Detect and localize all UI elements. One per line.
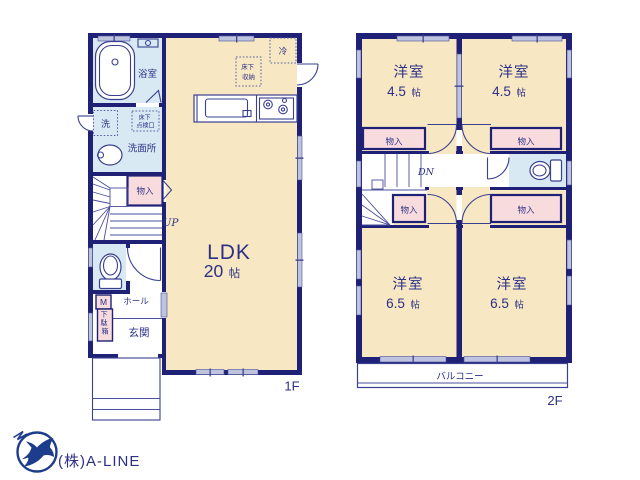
label-balcony: バルコニー <box>436 372 483 383</box>
label-closet-2f-tr: 物入 <box>517 137 535 147</box>
label-floor-2f: 2F <box>547 393 562 408</box>
label-stairs-down: DN <box>417 167 435 178</box>
label-closet-2f-tl: 物入 <box>385 137 403 147</box>
floorplan-page: 浴室 洗 床下 点検口 洗面所 物入 UP LDK 20 帖 床下 収納 冷 M… <box>0 0 640 480</box>
label-west-room-tl: 洋室 <box>394 64 425 81</box>
label-west-room-bl: 洋室 <box>393 276 424 293</box>
floor-2f-plan: 洋室 4.5 帖 洋室 4.5 帖 洋室 6.5 帖 洋室 6.5 帖 物入 物… <box>356 33 572 408</box>
porch <box>93 358 161 420</box>
company-name: (株)A-LINE <box>58 453 140 470</box>
toilet-door-icon-1f <box>128 248 161 281</box>
label-west-room-tr: 洋室 <box>499 64 530 81</box>
label-meter: M <box>100 297 107 307</box>
washbasin-icon <box>98 145 123 165</box>
company-logo <box>14 432 57 472</box>
toilet-icon-2f <box>530 160 562 181</box>
label-refrigerator: 冷 <box>279 46 288 56</box>
toilet-icon-1f <box>100 254 122 289</box>
hallway-2f <box>427 154 509 187</box>
label-washer: 洗 <box>101 118 110 129</box>
label-shoe-cabinet: 下 駄 箱 <box>101 311 110 336</box>
sliding-door-hall-ldk <box>161 293 167 317</box>
floor-1f-plan: 浴室 洗 床下 点検口 洗面所 物入 UP LDK 20 帖 床下 収納 冷 M… <box>78 33 318 420</box>
label-entrance: 玄関 <box>129 326 150 339</box>
label-west-room-br: 洋室 <box>497 276 528 293</box>
label-floor-1f: 1F <box>284 379 299 394</box>
label-washroom: 洗面所 <box>128 143 157 155</box>
label-hall: ホール <box>123 296 149 306</box>
kitchen-counter-icon <box>194 95 297 122</box>
label-stairs-up: UP <box>163 217 180 229</box>
label-closet-2f-bl: 物入 <box>400 205 418 215</box>
label-closet-1f: 物入 <box>136 186 154 196</box>
floorplan-svg: 浴室 洗 床下 点検口 洗面所 物入 UP LDK 20 帖 床下 収納 冷 M… <box>0 0 640 480</box>
room-ldk <box>166 38 297 370</box>
label-bathroom: 浴室 <box>138 68 157 80</box>
label-closet-2f-br: 物入 <box>517 205 535 215</box>
